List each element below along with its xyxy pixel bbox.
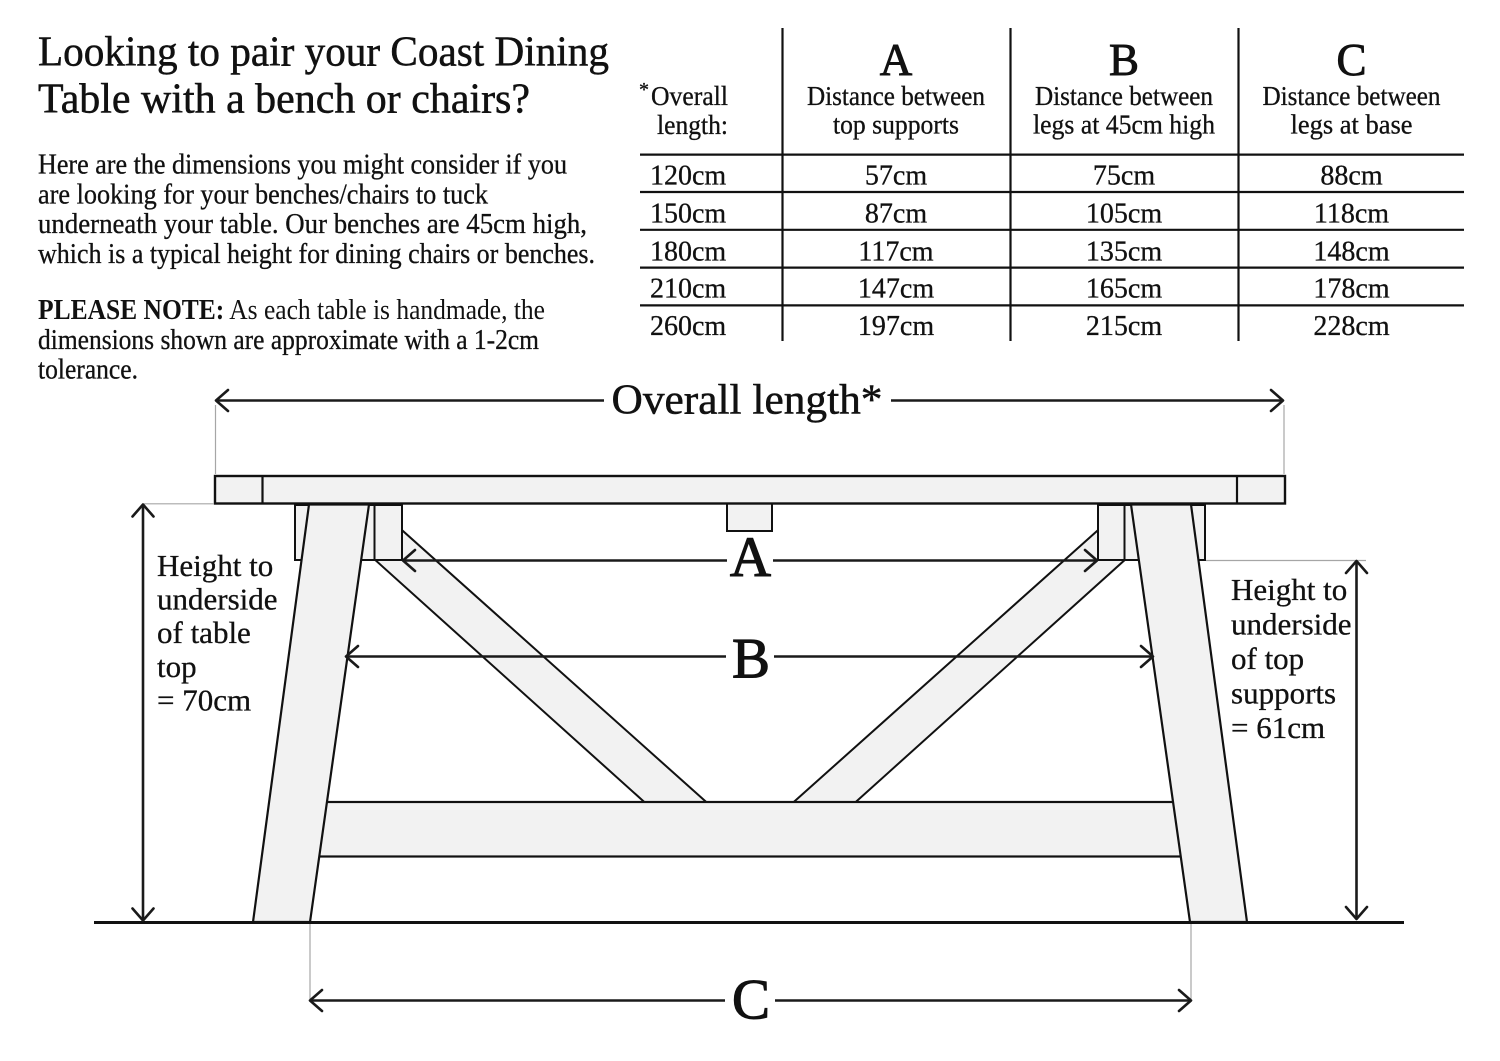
svg-text:C: C — [732, 969, 770, 1032]
svg-text:top supports: top supports — [833, 110, 959, 140]
svg-text:A: A — [730, 526, 771, 589]
svg-text:B: B — [732, 628, 770, 691]
svg-text:135cm: 135cm — [1086, 236, 1162, 267]
svg-text:228cm: 228cm — [1313, 311, 1389, 342]
svg-text:underneath your table. Our ben: underneath your table. Our benches are 4… — [38, 209, 587, 240]
svg-text:180cm: 180cm — [650, 236, 726, 267]
svg-text:Looking to pair your Coast Din: Looking to pair your Coast Dining — [38, 30, 609, 76]
svg-text:Overall: Overall — [651, 81, 728, 111]
svg-text:Distance between: Distance between — [1263, 81, 1441, 111]
svg-text:105cm: 105cm — [1086, 198, 1162, 229]
svg-text:legs at base: legs at base — [1291, 110, 1413, 140]
svg-text:of top: of top — [1231, 641, 1304, 676]
svg-text:118cm: 118cm — [1314, 198, 1389, 229]
svg-text:120cm: 120cm — [650, 161, 726, 192]
svg-text:= 61cm: = 61cm — [1231, 710, 1325, 745]
svg-text:165cm: 165cm — [1086, 274, 1162, 305]
svg-text:75cm: 75cm — [1093, 161, 1155, 192]
svg-text:*: * — [639, 79, 649, 101]
svg-text:Distance between: Distance between — [807, 81, 985, 111]
svg-text:legs at 45cm high: legs at 45cm high — [1033, 110, 1215, 140]
svg-text:B: B — [1109, 35, 1139, 85]
svg-text:Distance between: Distance between — [1035, 81, 1213, 111]
svg-text:147cm: 147cm — [858, 274, 934, 305]
svg-text:150cm: 150cm — [650, 198, 726, 229]
svg-text:top: top — [157, 649, 197, 684]
svg-text:underside: underside — [157, 582, 278, 617]
svg-text:Height to: Height to — [157, 548, 273, 583]
svg-text:178cm: 178cm — [1313, 274, 1389, 305]
svg-text:88cm: 88cm — [1320, 161, 1382, 192]
svg-text:117cm: 117cm — [858, 236, 933, 267]
svg-text:Height to: Height to — [1231, 572, 1347, 607]
svg-text:210cm: 210cm — [650, 274, 726, 305]
svg-text:Table with a bench or chairs?: Table with a bench or chairs? — [38, 76, 530, 122]
svg-text:197cm: 197cm — [858, 311, 934, 342]
svg-text:PLEASE NOTE: As each table is: PLEASE NOTE: As each table is handmade, … — [38, 295, 545, 326]
svg-text:57cm: 57cm — [865, 161, 927, 192]
svg-text:260cm: 260cm — [650, 311, 726, 342]
svg-text:C: C — [1336, 35, 1366, 85]
svg-text:tolerance.: tolerance. — [38, 355, 138, 386]
svg-text:of table: of table — [157, 615, 251, 650]
svg-text:are looking for your benches/c: are looking for your benches/chairs to t… — [38, 179, 488, 210]
svg-text:= 70cm: = 70cm — [157, 682, 251, 717]
svg-text:A: A — [880, 35, 913, 85]
svg-text:Here are the dimensions you mi: Here are the dimensions you might consid… — [38, 149, 567, 180]
svg-text:underside: underside — [1231, 607, 1352, 642]
svg-text:Overall length*: Overall length* — [612, 378, 883, 424]
svg-text:length:: length: — [657, 110, 728, 140]
svg-text:87cm: 87cm — [865, 198, 927, 229]
svg-text:148cm: 148cm — [1313, 236, 1389, 267]
svg-text:supports: supports — [1231, 676, 1336, 711]
svg-text:215cm: 215cm — [1086, 311, 1162, 342]
svg-text:which is a typical height for: which is a typical height for dining cha… — [38, 239, 595, 270]
svg-text:dimensions shown are approxima: dimensions shown are approximate with a … — [38, 325, 539, 356]
